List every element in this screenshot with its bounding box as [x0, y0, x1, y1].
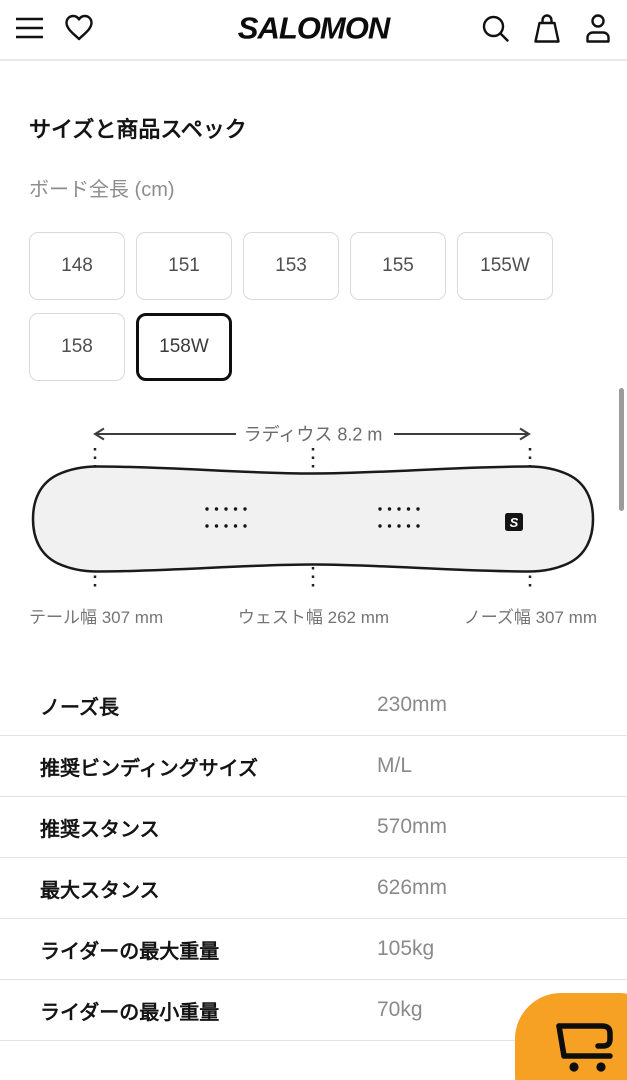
size-selector: 148 151 153 155 155W 158 158W [29, 232, 589, 381]
size-option-158w-selected[interactable]: 158W [136, 313, 232, 381]
spec-label: ライダーの最大重量 [40, 935, 377, 964]
heart-icon [64, 14, 94, 45]
account-icon [584, 13, 612, 46]
spec-label: ノーズ長 [40, 691, 377, 720]
page-scrollbar-thumb[interactable] [619, 388, 624, 511]
search-button[interactable] [481, 14, 510, 46]
add-to-cart-fab[interactable] [515, 993, 627, 1080]
waist-width-label: ウェスト幅 262 mm [238, 603, 389, 628]
spec-row-recommended-stance: 推奨スタンス 570mm [0, 797, 627, 858]
spec-row-max-stance: 最大スタンス 626mm [0, 858, 627, 919]
bag-icon [532, 13, 562, 47]
search-icon [481, 14, 510, 46]
board-diagram: ラディウス 8.2 m S テール幅 307 mm ウェスト幅 262 mm ノ… [0, 408, 627, 645]
spec-label: 最大スタンス [40, 874, 377, 903]
menu-icon [15, 15, 44, 44]
menu-button[interactable] [15, 15, 44, 44]
size-option-155[interactable]: 155 [350, 232, 446, 300]
app-header: SALOMON [0, 0, 627, 61]
cart-bag-button[interactable] [532, 13, 562, 47]
spec-value: M/L [377, 754, 412, 778]
size-option-153[interactable]: 153 [243, 232, 339, 300]
spec-row-nose-length: ノーズ長 230mm [0, 675, 627, 736]
wishlist-button[interactable] [64, 14, 94, 45]
spec-row-max-rider-weight: ライダーの最大重量 105kg [0, 919, 627, 980]
brand-logo[interactable]: SALOMON [238, 10, 389, 46]
spec-section: サイズと商品スペック ボード全長 (cm) 148 151 153 155 15… [0, 112, 627, 381]
spec-label: 推奨スタンス [40, 813, 377, 842]
spec-row-binding-size: 推奨ビンディングサイズ M/L [0, 736, 627, 797]
svg-text:S: S [510, 515, 519, 530]
spec-value: 626mm [377, 876, 447, 900]
board-length-label: ボード全長 (cm) [29, 173, 599, 202]
tail-width-label: テール幅 307 mm [29, 603, 163, 628]
salomon-s-mark: S [505, 513, 523, 531]
spec-label: 推奨ビンディングサイズ [40, 752, 377, 781]
size-option-158[interactable]: 158 [29, 313, 125, 381]
spec-value: 105kg [377, 937, 434, 961]
header-left-group [15, 14, 94, 45]
account-button[interactable] [584, 13, 612, 46]
section-title: サイズと商品スペック [29, 112, 599, 144]
spec-label: ライダーの最小重量 [40, 996, 377, 1025]
radius-label: ラディウス 8.2 m [244, 425, 383, 445]
header-right-group [481, 13, 612, 47]
spec-value: 570mm [377, 815, 447, 839]
size-option-151[interactable]: 151 [136, 232, 232, 300]
size-option-148[interactable]: 148 [29, 232, 125, 300]
size-option-155w[interactable]: 155W [457, 232, 553, 300]
nose-width-label: ノーズ幅 307 mm [464, 603, 597, 628]
spec-value: 70kg [377, 998, 423, 1022]
spec-value: 230mm [377, 693, 447, 717]
